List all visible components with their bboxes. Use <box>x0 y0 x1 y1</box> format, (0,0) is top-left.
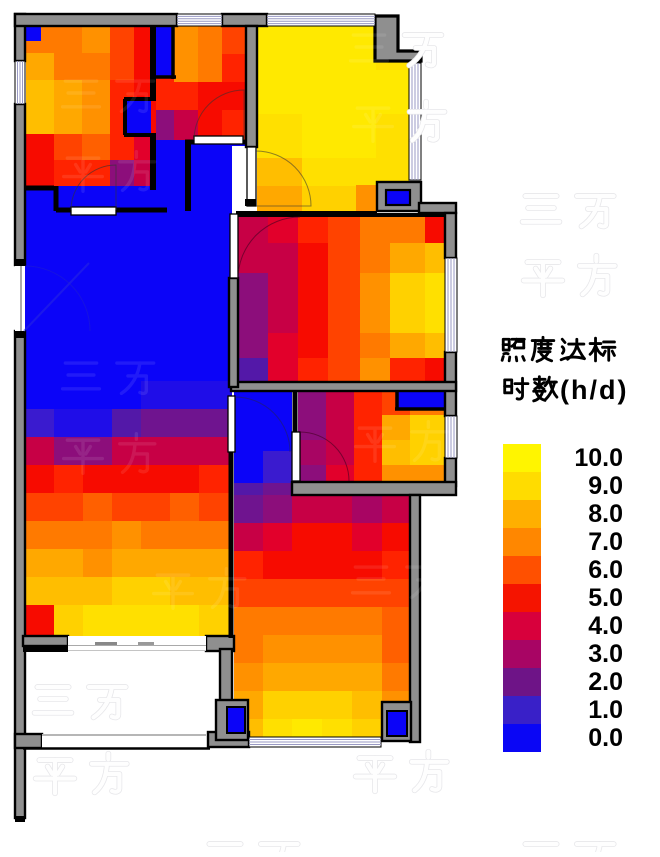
svg-text:0.0: 0.0 <box>588 724 623 752</box>
svg-text:4.0: 4.0 <box>588 612 623 640</box>
svg-text:(h/d): (h/d) <box>560 375 628 405</box>
svg-text:3.0: 3.0 <box>588 640 623 668</box>
svg-text:6.0: 6.0 <box>588 556 623 584</box>
svg-text:7.0: 7.0 <box>588 528 623 556</box>
svg-text:9.0: 9.0 <box>588 472 623 500</box>
svg-text:2.0: 2.0 <box>588 668 623 696</box>
svg-text:5.0: 5.0 <box>588 584 623 612</box>
svg-text:1.0: 1.0 <box>588 696 623 724</box>
svg-text:8.0: 8.0 <box>588 500 623 528</box>
svg-text:10.0: 10.0 <box>574 444 623 472</box>
